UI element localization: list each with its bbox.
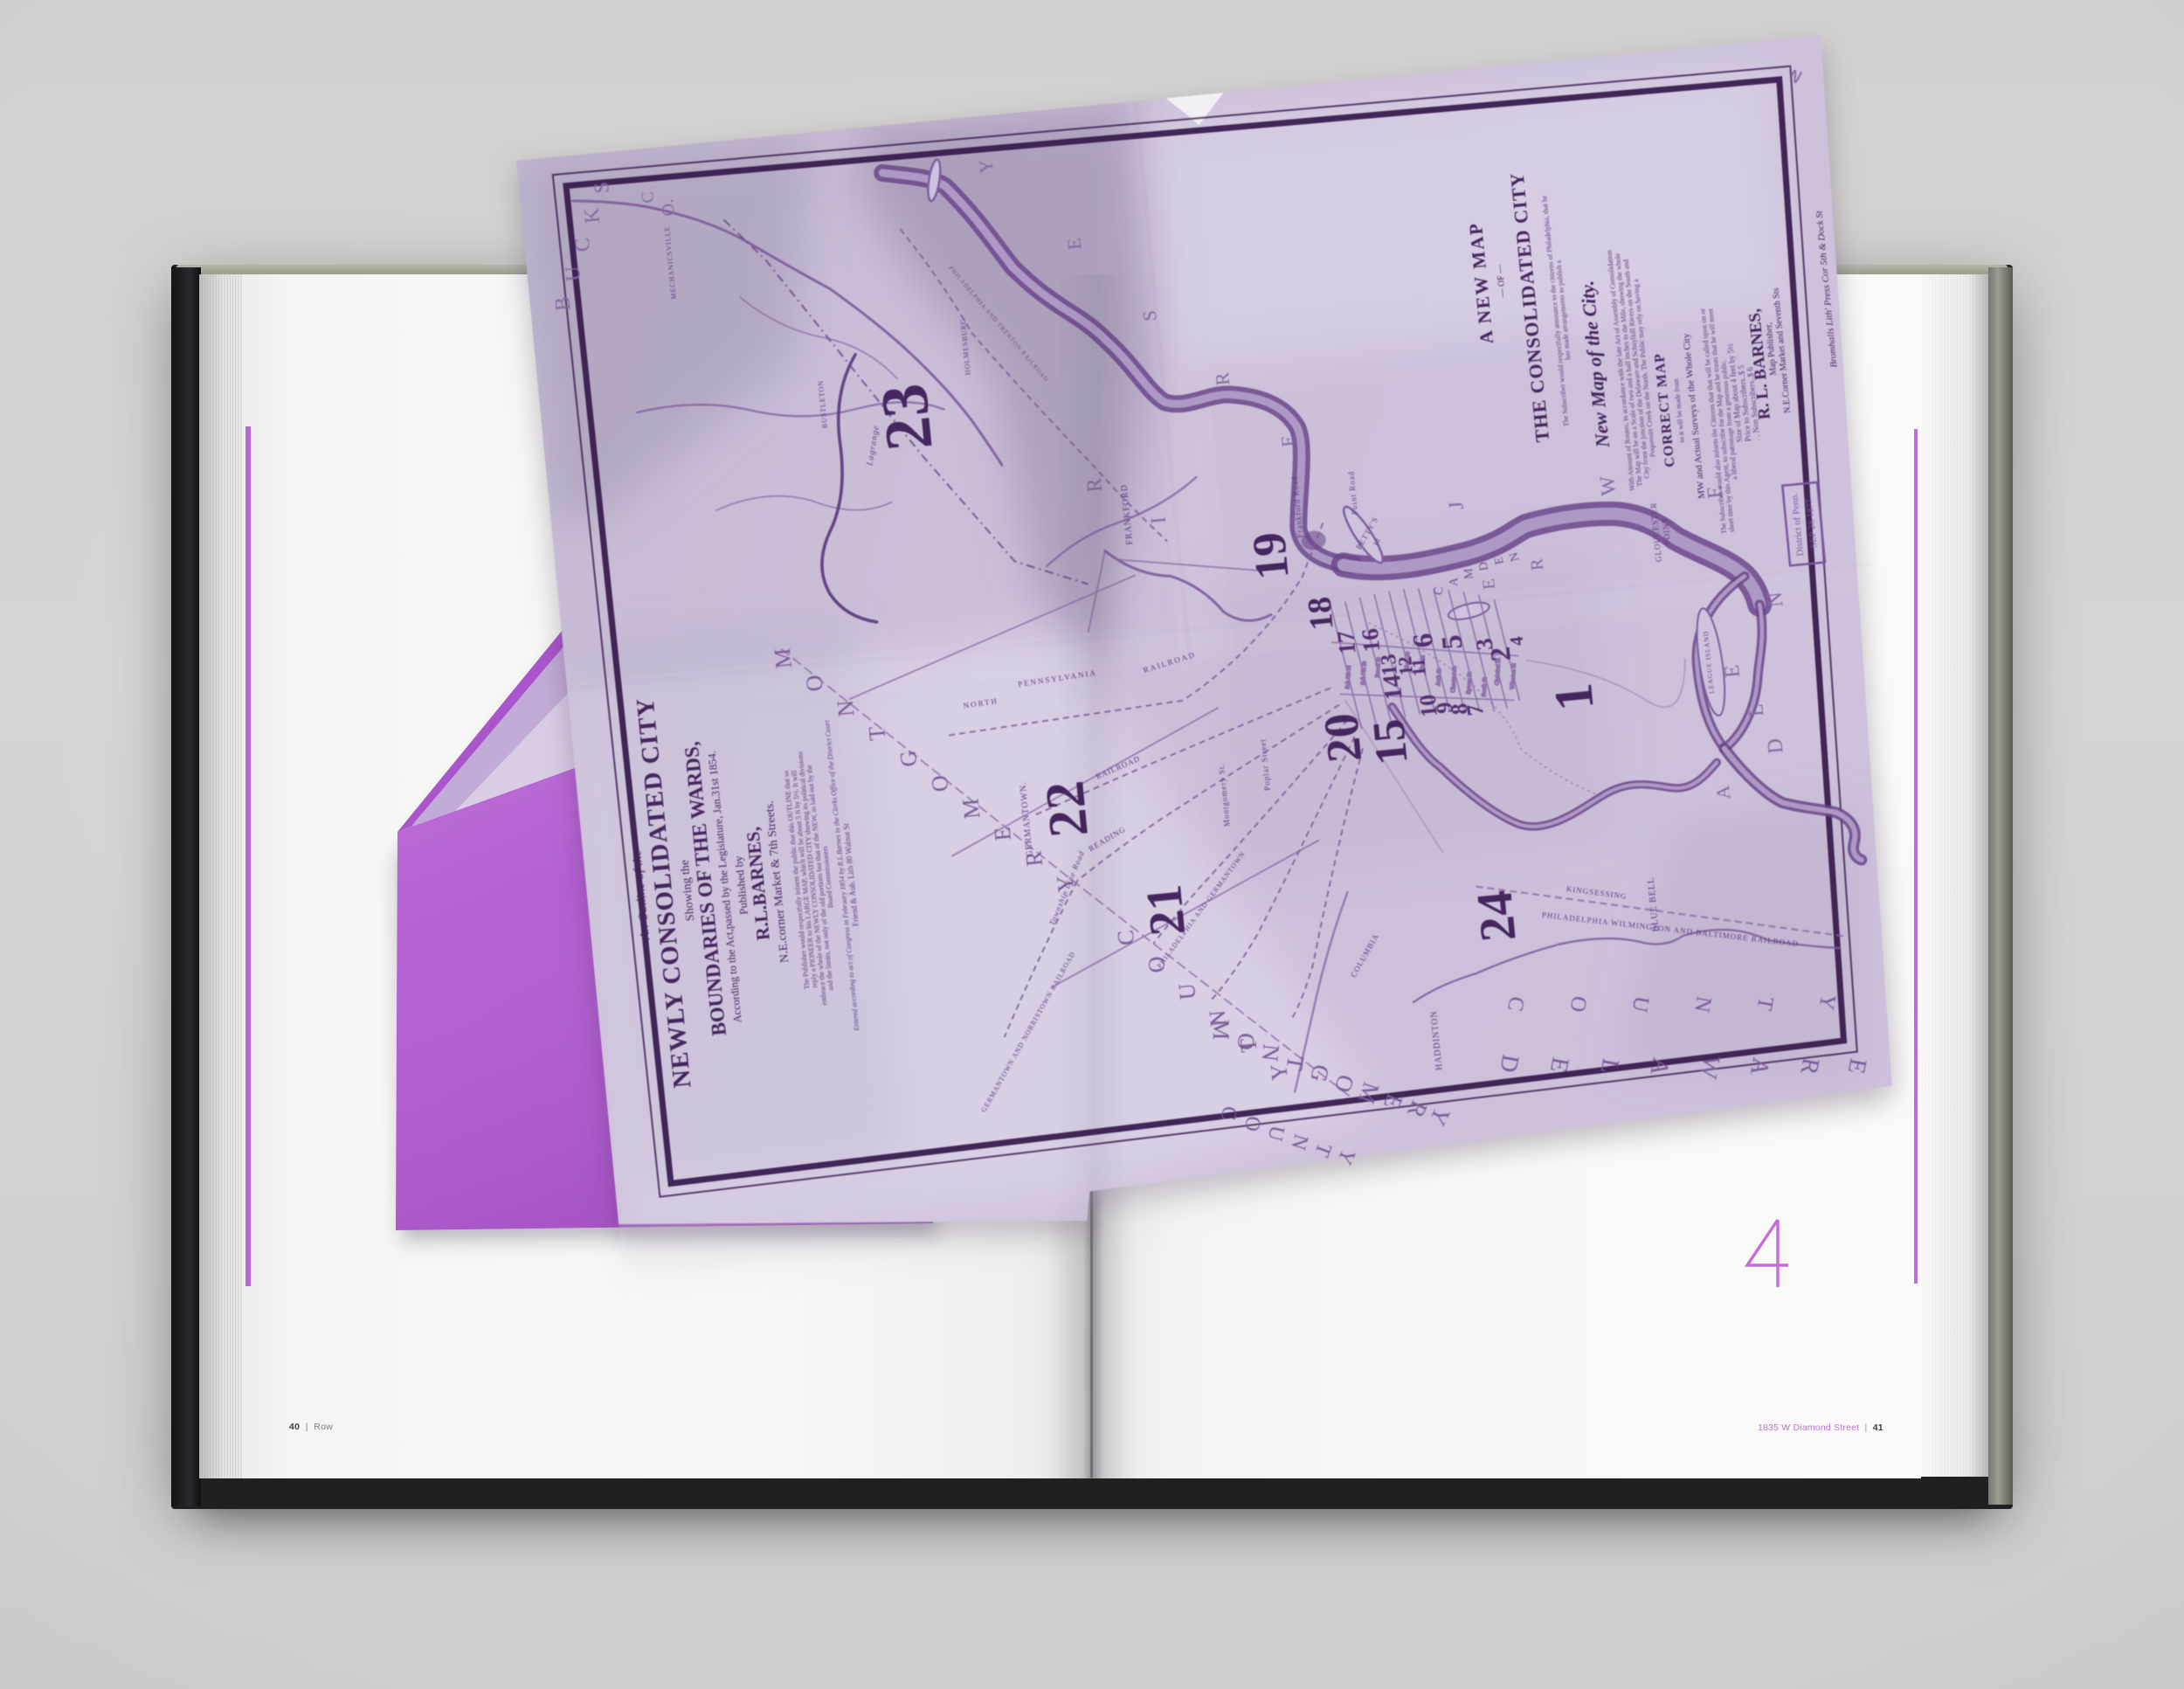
svg-text:D: D	[1477, 561, 1491, 571]
svg-text:U: U	[1174, 982, 1201, 1001]
svg-text:E: E	[990, 826, 1016, 842]
svg-text:O: O	[927, 774, 954, 793]
svg-text:23: 23	[867, 381, 947, 454]
svg-text:15: 15	[1364, 717, 1418, 767]
svg-text:A: A	[1448, 577, 1461, 586]
svg-text:18: 18	[1301, 595, 1340, 632]
svg-text:Arch St: Arch St	[1435, 668, 1442, 687]
svg-text:B: B	[551, 295, 575, 311]
svg-text:N: N	[1257, 1042, 1285, 1063]
svg-text:O.: O.	[658, 198, 679, 217]
svg-text:M: M	[957, 798, 985, 820]
svg-text:E: E	[1479, 578, 1499, 590]
svg-text:O: O	[801, 674, 828, 692]
svg-text:20: 20	[1314, 710, 1372, 765]
svg-text:C: C	[571, 237, 595, 253]
svg-text:M: M	[770, 647, 797, 669]
svg-text:E: E	[1721, 664, 1745, 679]
svg-text:7: 7	[1462, 703, 1489, 717]
svg-text:T: T	[864, 725, 890, 742]
svg-text:M: M	[1462, 567, 1476, 579]
svg-text:N: N	[1764, 591, 1788, 608]
svg-text:24: 24	[1465, 889, 1526, 945]
svg-text:E: E	[1062, 237, 1085, 251]
svg-text:W: W	[1596, 474, 1621, 496]
svg-text:U: U	[562, 265, 586, 282]
svg-text:C: C	[638, 190, 658, 204]
svg-text:C: C	[1433, 586, 1447, 595]
svg-text:S: S	[591, 181, 614, 195]
svg-text:D: D	[1764, 737, 1788, 755]
svg-text:19: 19	[1242, 530, 1299, 583]
svg-text:14: 14	[1378, 674, 1408, 702]
svg-text:6: 6	[1407, 632, 1440, 649]
svg-text:11: 11	[1406, 657, 1430, 677]
svg-text:C: C	[1217, 1105, 1241, 1121]
svg-text:G: G	[895, 749, 923, 767]
svg-text:1: 1	[1544, 681, 1606, 713]
svg-text:South St: South St	[1481, 677, 1488, 697]
svg-text:Y: Y	[974, 158, 997, 174]
svg-text:5: 5	[1436, 633, 1469, 651]
svg-text:A: A	[1711, 785, 1734, 800]
svg-text:S: S	[1138, 309, 1161, 322]
svg-text:O: O	[1233, 1032, 1260, 1050]
svg-text:M: M	[1208, 1019, 1234, 1040]
svg-text:R: R	[1211, 371, 1234, 386]
svg-text:N: N	[833, 699, 860, 718]
svg-text:16: 16	[1357, 627, 1385, 654]
svg-text:2: 2	[1485, 646, 1517, 663]
svg-text:E: E	[1276, 434, 1299, 448]
svg-text:K: K	[581, 206, 605, 224]
svg-text:L: L	[1745, 703, 1768, 717]
